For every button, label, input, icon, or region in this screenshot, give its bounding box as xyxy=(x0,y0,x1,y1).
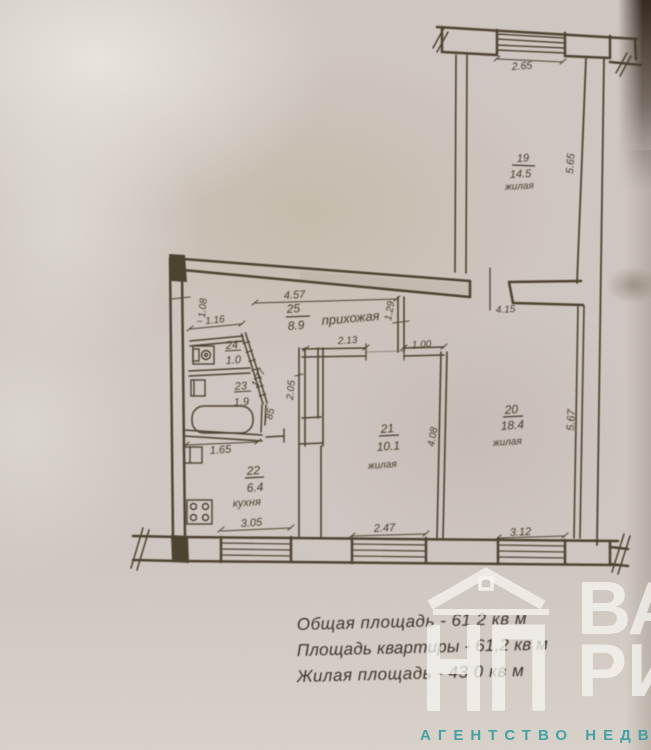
svg-text:~ 1.16: ~ 1.16 xyxy=(196,314,226,328)
svg-text:23: 23 xyxy=(233,380,248,393)
svg-text:ВА: ВА xyxy=(577,566,651,650)
svg-text:АГЕНТСТВО НЕДВ: АГЕНТСТВО НЕДВ xyxy=(420,727,651,744)
svg-text:Жилая площадь - 43 0 кв м: Жилая площадь - 43 0 кв м xyxy=(296,661,525,686)
svg-text:Общая площадь - 61 2 кв м: Общая площадь - 61 2 кв м xyxy=(297,609,528,634)
svg-text:Площадь квартиры - 61,2 кв м: Площадь квартиры - 61,2 кв м xyxy=(297,634,549,660)
svg-text:25: 25 xyxy=(285,301,301,316)
svg-text:85: 85 xyxy=(264,407,277,421)
svg-text:4.15: 4.15 xyxy=(496,304,516,316)
svg-text:20: 20 xyxy=(503,402,519,417)
svg-text:18.4: 18.4 xyxy=(500,417,525,433)
svg-text:1.00: 1.00 xyxy=(412,339,432,351)
svg-text:5.65: 5.65 xyxy=(564,153,577,174)
svg-text:1.08: 1.08 xyxy=(197,297,210,318)
svg-text:жилая: жилая xyxy=(504,180,535,193)
svg-text:1.29: 1.29 xyxy=(383,300,397,322)
svg-text:2.05: 2.05 xyxy=(285,379,298,401)
svg-text:2.65: 2.65 xyxy=(510,60,532,73)
svg-text:10.1: 10.1 xyxy=(376,438,400,454)
svg-text:22: 22 xyxy=(245,463,261,478)
svg-text:жилая: жилая xyxy=(366,459,397,472)
svg-text:3.05: 3.05 xyxy=(240,516,263,530)
svg-text:8.9: 8.9 xyxy=(287,318,305,333)
svg-text:прихожая: прихожая xyxy=(321,308,380,328)
svg-text:2.47: 2.47 xyxy=(373,522,397,535)
svg-text:1.9: 1.9 xyxy=(233,396,249,409)
svg-text:кухня: кухня xyxy=(232,496,261,510)
svg-text:РИ: РИ xyxy=(577,628,651,712)
svg-text:6.4: 6.4 xyxy=(246,480,264,495)
svg-text:4.08: 4.08 xyxy=(426,426,440,448)
svg-text:жилая: жилая xyxy=(491,436,522,449)
svg-text:1.0: 1.0 xyxy=(225,354,242,367)
svg-text:2.13: 2.13 xyxy=(337,335,358,347)
svg-text:4.57: 4.57 xyxy=(284,289,307,302)
svg-text:5.67: 5.67 xyxy=(565,408,578,431)
svg-text:1.65: 1.65 xyxy=(209,443,232,457)
svg-text:19: 19 xyxy=(517,152,530,165)
svg-text:1.77: 1.77 xyxy=(250,367,269,390)
svg-text:3.12: 3.12 xyxy=(510,526,532,539)
svg-text:14.5: 14.5 xyxy=(510,168,533,181)
svg-text:21: 21 xyxy=(379,421,394,436)
svg-text:24: 24 xyxy=(224,339,238,352)
svg-text:НП: НП xyxy=(421,599,551,739)
